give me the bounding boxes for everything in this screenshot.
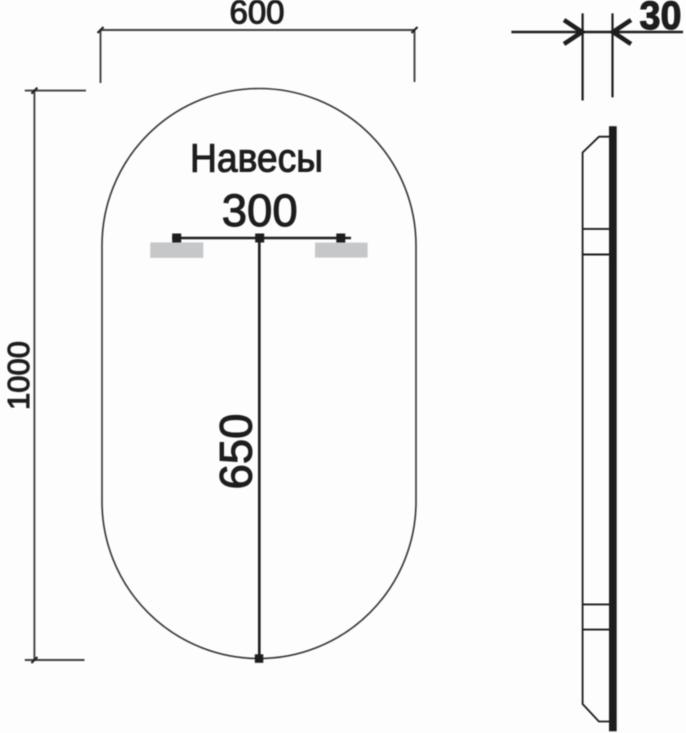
svg-text:Навесы: Навесы (190, 136, 323, 180)
svg-text:650: 650 (211, 414, 262, 490)
svg-text:1000: 1000 (1, 341, 36, 410)
svg-text:300: 300 (222, 185, 298, 236)
svg-text:600: 600 (229, 0, 284, 31)
